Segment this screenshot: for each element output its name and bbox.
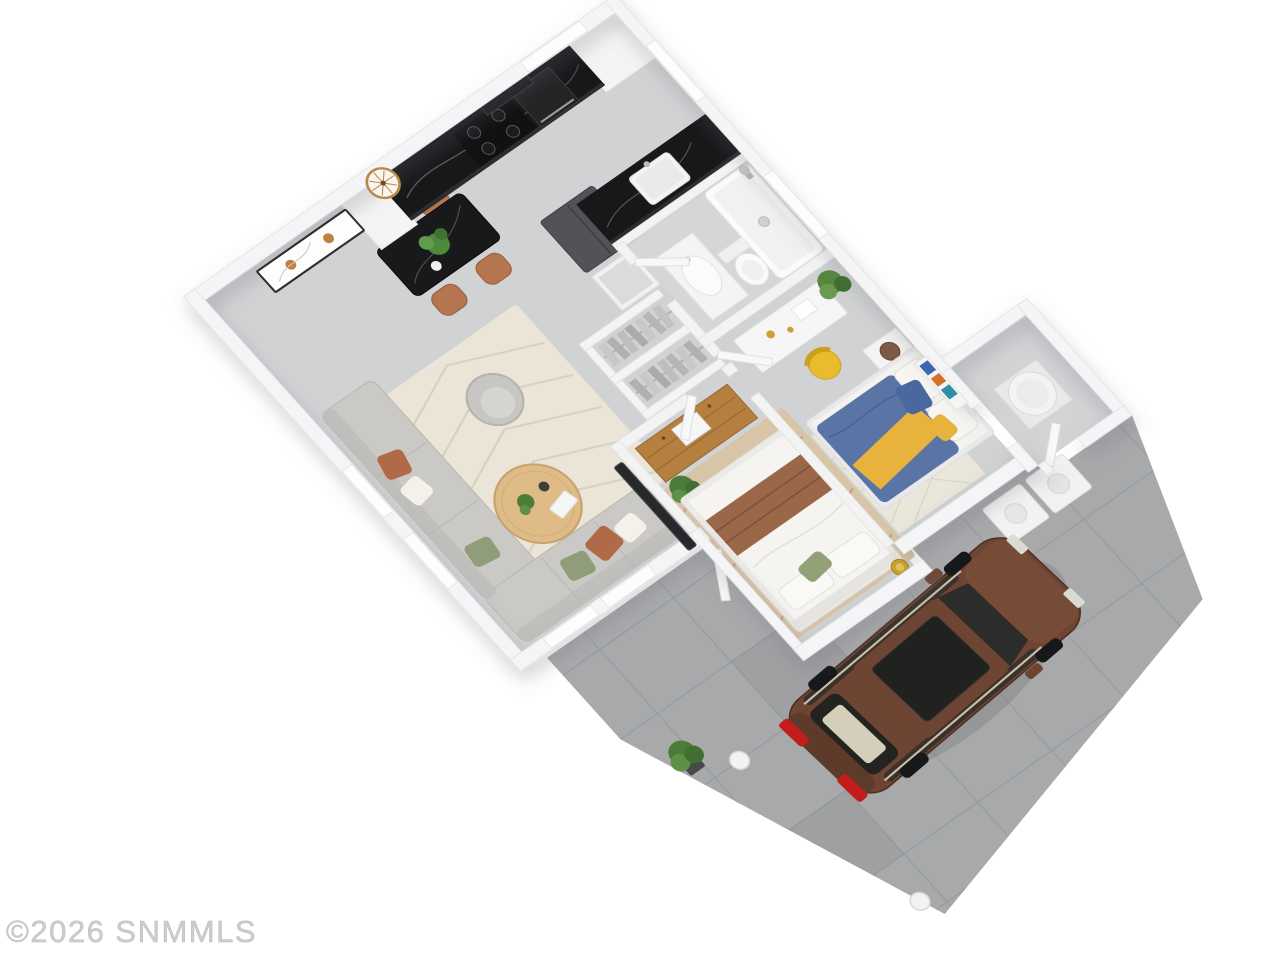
- bathroom-door: [635, 258, 690, 266]
- floor-plan-image: ©2026 SNMMLS: [0, 0, 1276, 960]
- watermark: ©2026 SNMMLS: [6, 914, 257, 950]
